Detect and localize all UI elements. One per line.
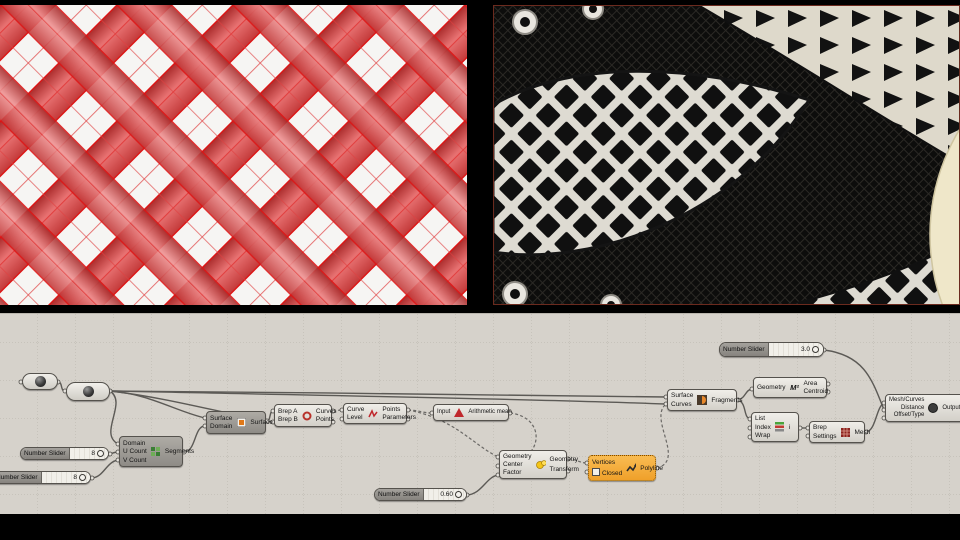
slider-track[interactable]: 8 [42, 472, 90, 483]
closed-checkbox[interactable] [592, 468, 600, 476]
surface-split-icon [696, 390, 708, 410]
slider-grip[interactable] [97, 450, 104, 457]
port-label: Surface [210, 415, 232, 422]
slider-value: 3.0 [801, 344, 810, 355]
port-label: Index [755, 424, 771, 431]
geometry-sphere-icon [83, 386, 94, 397]
port-label: U Count [123, 448, 147, 455]
port-label: Brep A [278, 408, 298, 415]
mesh-brep-icon [840, 422, 852, 442]
port-label: Factor [503, 469, 532, 476]
polyline-icon [625, 456, 637, 480]
average-component[interactable]: Input Arithmetic mean [433, 404, 509, 421]
bottom-bar [0, 513, 960, 540]
port-label: Domain [123, 440, 147, 447]
mid-bar [0, 305, 960, 313]
port-label: Mesh [855, 429, 871, 436]
grasshopper-canvas[interactable]: Number Slider 8 Number Slider 8 Number S… [0, 313, 960, 514]
slider-track[interactable]: 0.60 [424, 489, 466, 500]
offset-mesh-icon [927, 395, 939, 421]
geometry-param-b[interactable] [66, 382, 110, 401]
slider-grip[interactable] [812, 346, 819, 353]
list-item-icon [774, 413, 786, 441]
offset-mesh-component[interactable]: Mesh/Curves Distance Offset/Type Output … [885, 394, 960, 422]
divide-domain-component[interactable]: Domain U Count V Count Segments [119, 436, 183, 467]
slider-value: 8 [73, 472, 77, 483]
port-label: Surface [671, 392, 693, 399]
distance-slider[interactable]: Number Slider 3.0 [719, 342, 824, 357]
port-label: Geometry [757, 384, 786, 391]
shoe-fabric-photo [493, 5, 960, 305]
port-label: Vertices [592, 459, 622, 466]
red-lattice-art [0, 5, 467, 305]
port-label: Geometry [550, 456, 579, 463]
port-label: Area [804, 380, 818, 387]
port-label: Center [503, 461, 532, 468]
app-window: { "viewport": { "left_render": "red-diag… [0, 0, 960, 540]
isotrim-component[interactable]: Surface Domain Surface [206, 411, 266, 434]
slider-value: 0.60 [440, 489, 453, 500]
discontinuity-component[interactable]: Curve Level Points Parameters [343, 403, 407, 424]
slider-grip[interactable] [79, 474, 86, 481]
divide-domain-icon [150, 437, 162, 466]
port-label: Input [437, 409, 450, 416]
v-count-slider[interactable]: Number Slider 8 [0, 471, 91, 484]
slider-track[interactable]: 3.0 [769, 343, 823, 356]
polyline-component[interactable]: Vertices Closed Polyline [588, 455, 656, 481]
port-label: Offset/Type [894, 412, 925, 419]
port-label: Closed [592, 468, 622, 477]
port-label: Polyline [640, 465, 663, 472]
surface-split-component[interactable]: Surface Curves Fragments [667, 389, 737, 411]
u-count-slider[interactable]: Number Slider 8 [20, 447, 109, 460]
port-label: Brep [813, 424, 837, 431]
port-label: V Count [123, 457, 147, 464]
port-label: Transform [550, 466, 579, 473]
shoe-fabric-art [493, 5, 960, 305]
geometry-sphere-icon [35, 376, 46, 387]
port-label: Settings [813, 433, 837, 440]
isotrim-icon [235, 412, 247, 433]
port-label: Level [347, 414, 364, 421]
port-label: Brep B [278, 416, 298, 423]
port-label: Points [382, 406, 400, 413]
port-label: Arithmetic mean [468, 409, 511, 416]
port-label: Fragments [711, 397, 742, 404]
discontinuity-icon [367, 404, 379, 423]
image-gap-bar [467, 5, 493, 305]
slider-track[interactable]: 8 [70, 448, 108, 459]
slider-label: Number Slider [720, 343, 769, 356]
port-label: Segments [165, 448, 194, 455]
factor-slider[interactable]: Number Slider 0.60 [374, 488, 467, 501]
port-label: Surface [250, 419, 272, 426]
port-label: Curve [347, 406, 364, 413]
slider-value: 8 [91, 448, 95, 459]
port-label: Curves [671, 401, 693, 408]
brep-brep-component[interactable]: Brep A Brep B Curves Points [274, 404, 332, 427]
port-label: Mesh/Curves [889, 397, 924, 404]
list-item-component[interactable]: List Index Wrap i [751, 412, 799, 442]
slider-grip[interactable] [455, 491, 462, 498]
port-label: Distance [901, 405, 924, 412]
port-label: Parameters [382, 414, 416, 421]
port-label: Centroid [804, 388, 829, 395]
slider-label: Number Slider [21, 448, 70, 459]
slider-label: Number Slider [375, 489, 424, 500]
mesh-brep-component[interactable]: Brep Settings Mesh [809, 421, 865, 443]
port-label: Wrap [755, 432, 771, 439]
scale-component[interactable]: Geometry Center Factor Geometry Transfor… [499, 450, 567, 479]
area-icon: M² [790, 384, 799, 391]
area-component[interactable]: Geometry M² Area Centroid [753, 377, 827, 398]
port-label: i [789, 424, 790, 431]
port-label: Curves [316, 408, 337, 415]
red-lattice-render [0, 5, 467, 305]
port-label: Output Mesh/ [942, 405, 960, 412]
average-icon [453, 405, 465, 420]
scale-icon [535, 451, 547, 478]
geometry-param-a[interactable] [22, 373, 58, 390]
port-label: Domain [210, 423, 232, 430]
port-label: Geometry [503, 453, 532, 460]
port-label: Points [316, 416, 334, 423]
brep-brep-icon [301, 405, 313, 426]
port-label: List [755, 415, 771, 422]
slider-label: Number Slider [0, 472, 42, 483]
